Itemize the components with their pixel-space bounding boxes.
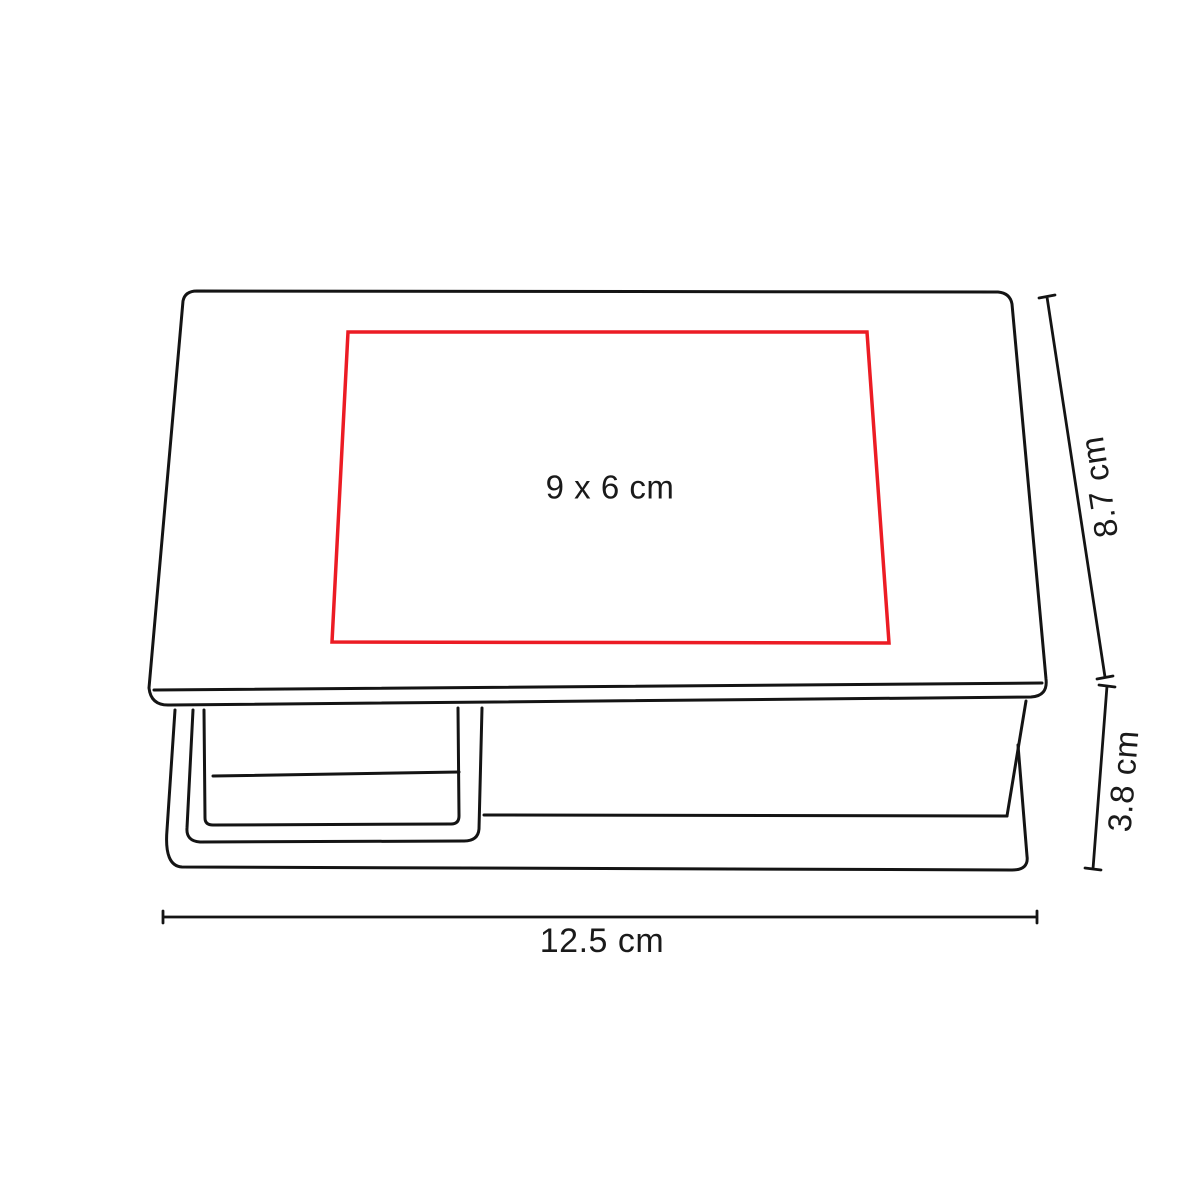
height-dimension-label: 3.8 cm xyxy=(1101,729,1146,834)
lid-edge-line xyxy=(154,683,1042,690)
slot-inner-frame xyxy=(204,708,459,825)
slot-floor-line xyxy=(213,772,459,776)
width-dimension-label: 12.5 cm xyxy=(540,922,664,960)
body-bottom-edge xyxy=(484,815,1007,816)
base-outline xyxy=(167,710,1028,870)
product-line-art xyxy=(149,291,1046,870)
product-dimension-diagram: 9 x 6 cm 8.7 cm 3.8 cm 12.5 cm xyxy=(0,0,1200,1200)
diagram-canvas: 9 x 6 cm 8.7 cm 3.8 cm 12.5 cm xyxy=(0,0,1200,1200)
dimension-lines xyxy=(163,295,1115,923)
print-area-label: 9 x 6 cm xyxy=(546,469,675,506)
